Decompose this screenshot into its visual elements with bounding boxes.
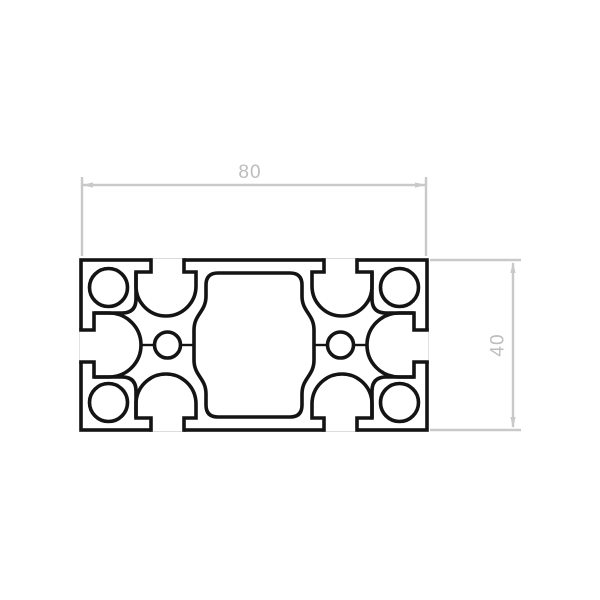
height-arrow-top-icon (510, 262, 515, 273)
center-bore-left (155, 332, 181, 358)
height-dimension: 40 (430, 260, 521, 430)
width-dimension: 80 (82, 162, 426, 256)
corner-bore-bottom-left (90, 384, 128, 422)
center-bore-right (328, 332, 354, 358)
corner-bore-top-left (90, 269, 128, 307)
drawing-page: 80 40 (0, 0, 600, 600)
profile-cross-section (79, 258, 429, 432)
width-arrow-left-icon (82, 182, 93, 187)
width-arrow-right-icon (415, 182, 426, 187)
corner-bore-top-right (381, 269, 419, 307)
height-dimension-label: 40 (488, 333, 509, 356)
height-arrow-bottom-icon (510, 417, 515, 428)
width-dimension-label: 80 (238, 162, 261, 183)
profile-drawing-canvas: 80 40 (0, 0, 600, 600)
center-cavity (194, 273, 314, 417)
corner-bore-bottom-right (381, 384, 419, 422)
